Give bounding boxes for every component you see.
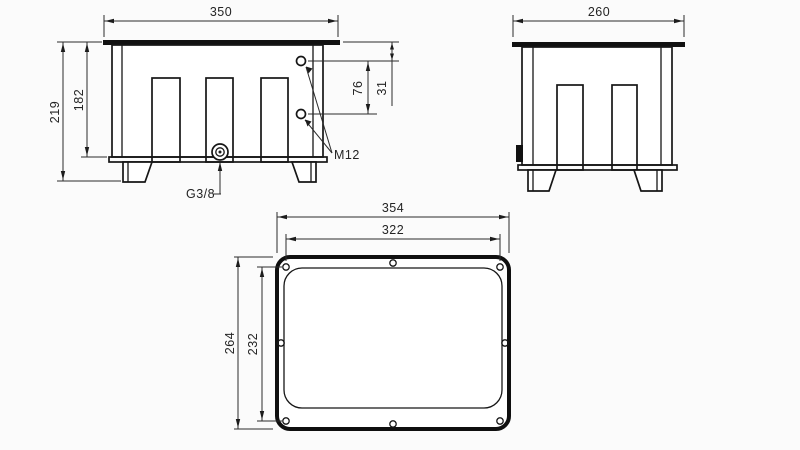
front-overall-height-dim-label: 219 bbox=[48, 101, 62, 123]
dim-arrow-left-icon bbox=[278, 215, 287, 219]
dim-arrow-right-icon bbox=[674, 19, 683, 23]
top-outer-width-dim-label: 354 bbox=[382, 201, 404, 215]
dim-arrow-down-icon bbox=[390, 54, 394, 61]
dim-arrow-down-icon bbox=[85, 147, 89, 156]
dim-arrow-up-icon bbox=[390, 43, 394, 50]
technical-drawing: 350 219 182 76 31 M12 bbox=[0, 0, 800, 450]
leader-arrow-icon bbox=[218, 162, 222, 171]
drain-port-label: G3/8 bbox=[186, 187, 215, 201]
top-outer-flange bbox=[277, 257, 509, 429]
dim-arrow-down-icon bbox=[260, 411, 264, 420]
top-bolt-height-dim-label: 232 bbox=[246, 333, 260, 355]
side-foot-right bbox=[634, 170, 662, 191]
dim-arrow-right-icon bbox=[490, 237, 499, 241]
front-body bbox=[112, 45, 323, 157]
front-hole-offset-dim-label: 31 bbox=[375, 81, 389, 96]
side-foot-left bbox=[528, 170, 556, 191]
drawing-canvas: 350 219 182 76 31 M12 bbox=[0, 0, 800, 450]
front-drain-center-dot bbox=[219, 151, 222, 154]
thread-size-label: M12 bbox=[334, 148, 360, 162]
side-width-dim-label: 260 bbox=[588, 5, 610, 19]
dim-arrow-down-icon bbox=[366, 104, 370, 113]
dim-arrow-up-icon bbox=[85, 43, 89, 52]
dim-arrow-right-icon bbox=[328, 19, 337, 23]
front-width-dim-label: 350 bbox=[210, 5, 232, 19]
dim-arrow-up-icon bbox=[61, 43, 65, 52]
dim-arrow-right-icon bbox=[499, 215, 508, 219]
front-thread-hole-top bbox=[297, 57, 306, 66]
front-view: 350 219 182 76 31 M12 bbox=[48, 5, 399, 201]
side-view: 260 bbox=[512, 5, 685, 191]
front-inner-height-dim-label: 182 bbox=[72, 89, 86, 111]
side-mount-tab bbox=[516, 145, 523, 162]
dim-arrow-down-icon bbox=[236, 419, 240, 428]
top-view: 354 322 264 232 bbox=[223, 201, 509, 429]
side-body bbox=[522, 47, 672, 165]
dim-arrow-up-icon bbox=[366, 62, 370, 71]
front-foot-right bbox=[292, 162, 316, 182]
top-bolt-width-dim-label: 322 bbox=[382, 223, 404, 237]
dim-arrow-up-icon bbox=[260, 268, 264, 277]
top-outer-height-dim-label: 264 bbox=[223, 332, 237, 354]
dim-arrow-left-icon bbox=[514, 19, 523, 23]
dim-arrow-down-icon bbox=[61, 171, 65, 180]
dim-arrow-left-icon bbox=[105, 19, 114, 23]
dim-arrow-left-icon bbox=[287, 237, 296, 241]
front-thread-hole-bottom bbox=[297, 110, 306, 119]
dim-arrow-up-icon bbox=[236, 258, 240, 267]
front-hole-spacing-dim-label: 76 bbox=[351, 81, 365, 96]
